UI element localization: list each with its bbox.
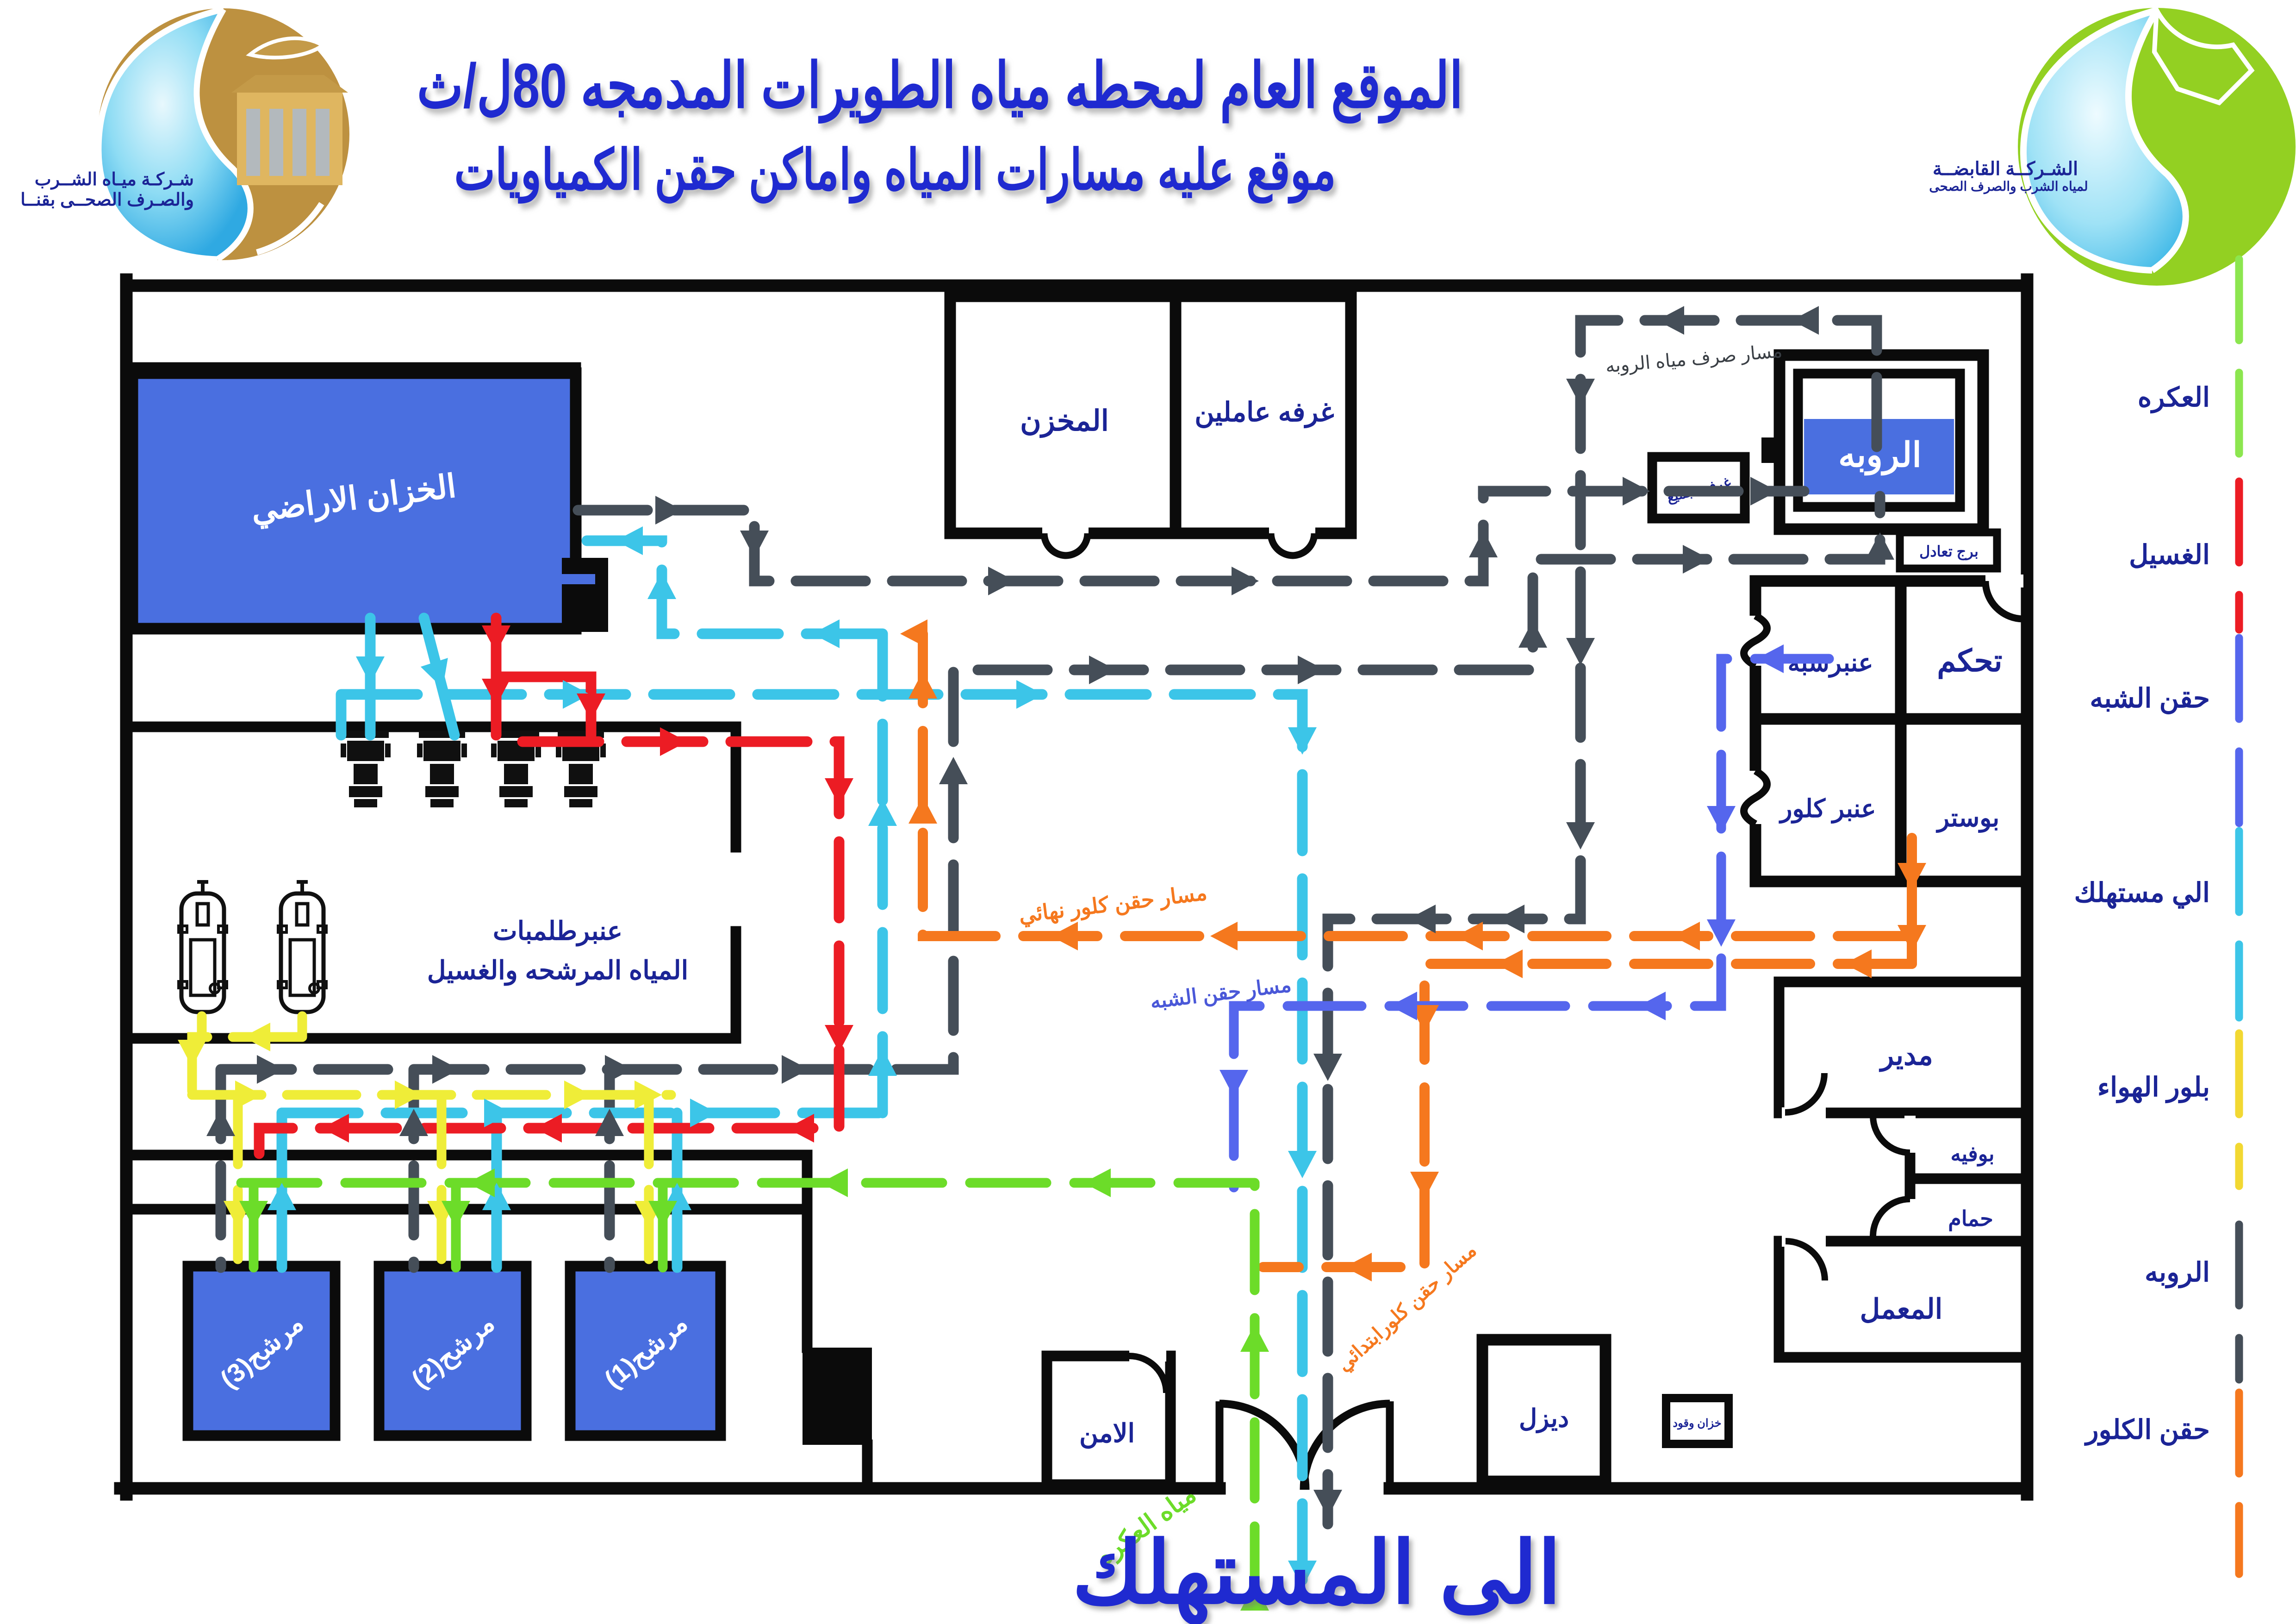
svg-text:بلور الهواء: بلور الهواء <box>2097 1072 2210 1104</box>
svg-text:الى المستهلك: الى المستهلك <box>1072 1525 1561 1624</box>
svg-text:لمياه الشرب والصرف الصحى: لمياه الشرب والصرف الصحى <box>1929 179 2088 194</box>
svg-text:عنبرطلمبات: عنبرطلمبات <box>493 916 622 947</box>
svg-text:المياه المرشحه والغسيل: المياه المرشحه والغسيل <box>427 956 688 986</box>
svg-text:ديزل: ديزل <box>1519 1405 1569 1434</box>
svg-text:خزان وقود: خزان وقود <box>1673 1417 1721 1430</box>
svg-text:الموقع العام لمحطه مياه الطوير: الموقع العام لمحطه مياه الطويرات المدمجه… <box>417 50 1463 124</box>
svg-text:الامن: الامن <box>1079 1418 1135 1449</box>
svg-text:حمام: حمام <box>1948 1206 1993 1231</box>
svg-text:غرفه عاملين: غرفه عاملين <box>1195 397 1334 429</box>
svg-text:الشـركــة القابضــة: الشـركــة القابضــة <box>1933 159 2078 180</box>
svg-text:المخزن: المخزن <box>1020 405 1109 438</box>
svg-text:الغسيل: الغسيل <box>2129 540 2210 570</box>
svg-text:مدير: مدير <box>1879 1040 1933 1072</box>
svg-text:برج تعادل: برج تعادل <box>1919 543 1979 561</box>
svg-text:حقن الشبه: حقن الشبه <box>2090 683 2210 715</box>
svg-text:بوستر: بوستر <box>1935 804 1999 833</box>
svg-text:والصـرف الصحــى بقنــا: والصـرف الصحــى بقنــا <box>20 190 194 210</box>
svg-text:حقن الكلور: حقن الكلور <box>2084 1415 2210 1446</box>
svg-text:موقع عليه مسارات المياه واماكن: موقع عليه مسارات المياه واماكن حقن الكمي… <box>454 138 1336 204</box>
svg-text:العكره: العكره <box>2138 382 2210 414</box>
svg-text:شـركـة ميـاه الشــرب: شـركـة ميـاه الشــرب <box>35 170 194 190</box>
svg-text:بوفيه: بوفيه <box>1951 1142 1995 1167</box>
svg-text:الروبه: الروبه <box>2145 1257 2210 1289</box>
svg-text:المعمل: المعمل <box>1860 1293 1943 1324</box>
svg-text:تحكم: تحكم <box>1937 643 2002 679</box>
svg-text:عنبر كلور: عنبر كلور <box>1778 795 1876 824</box>
svg-text:الي مستهلك: الي مستهلك <box>2074 878 2210 909</box>
